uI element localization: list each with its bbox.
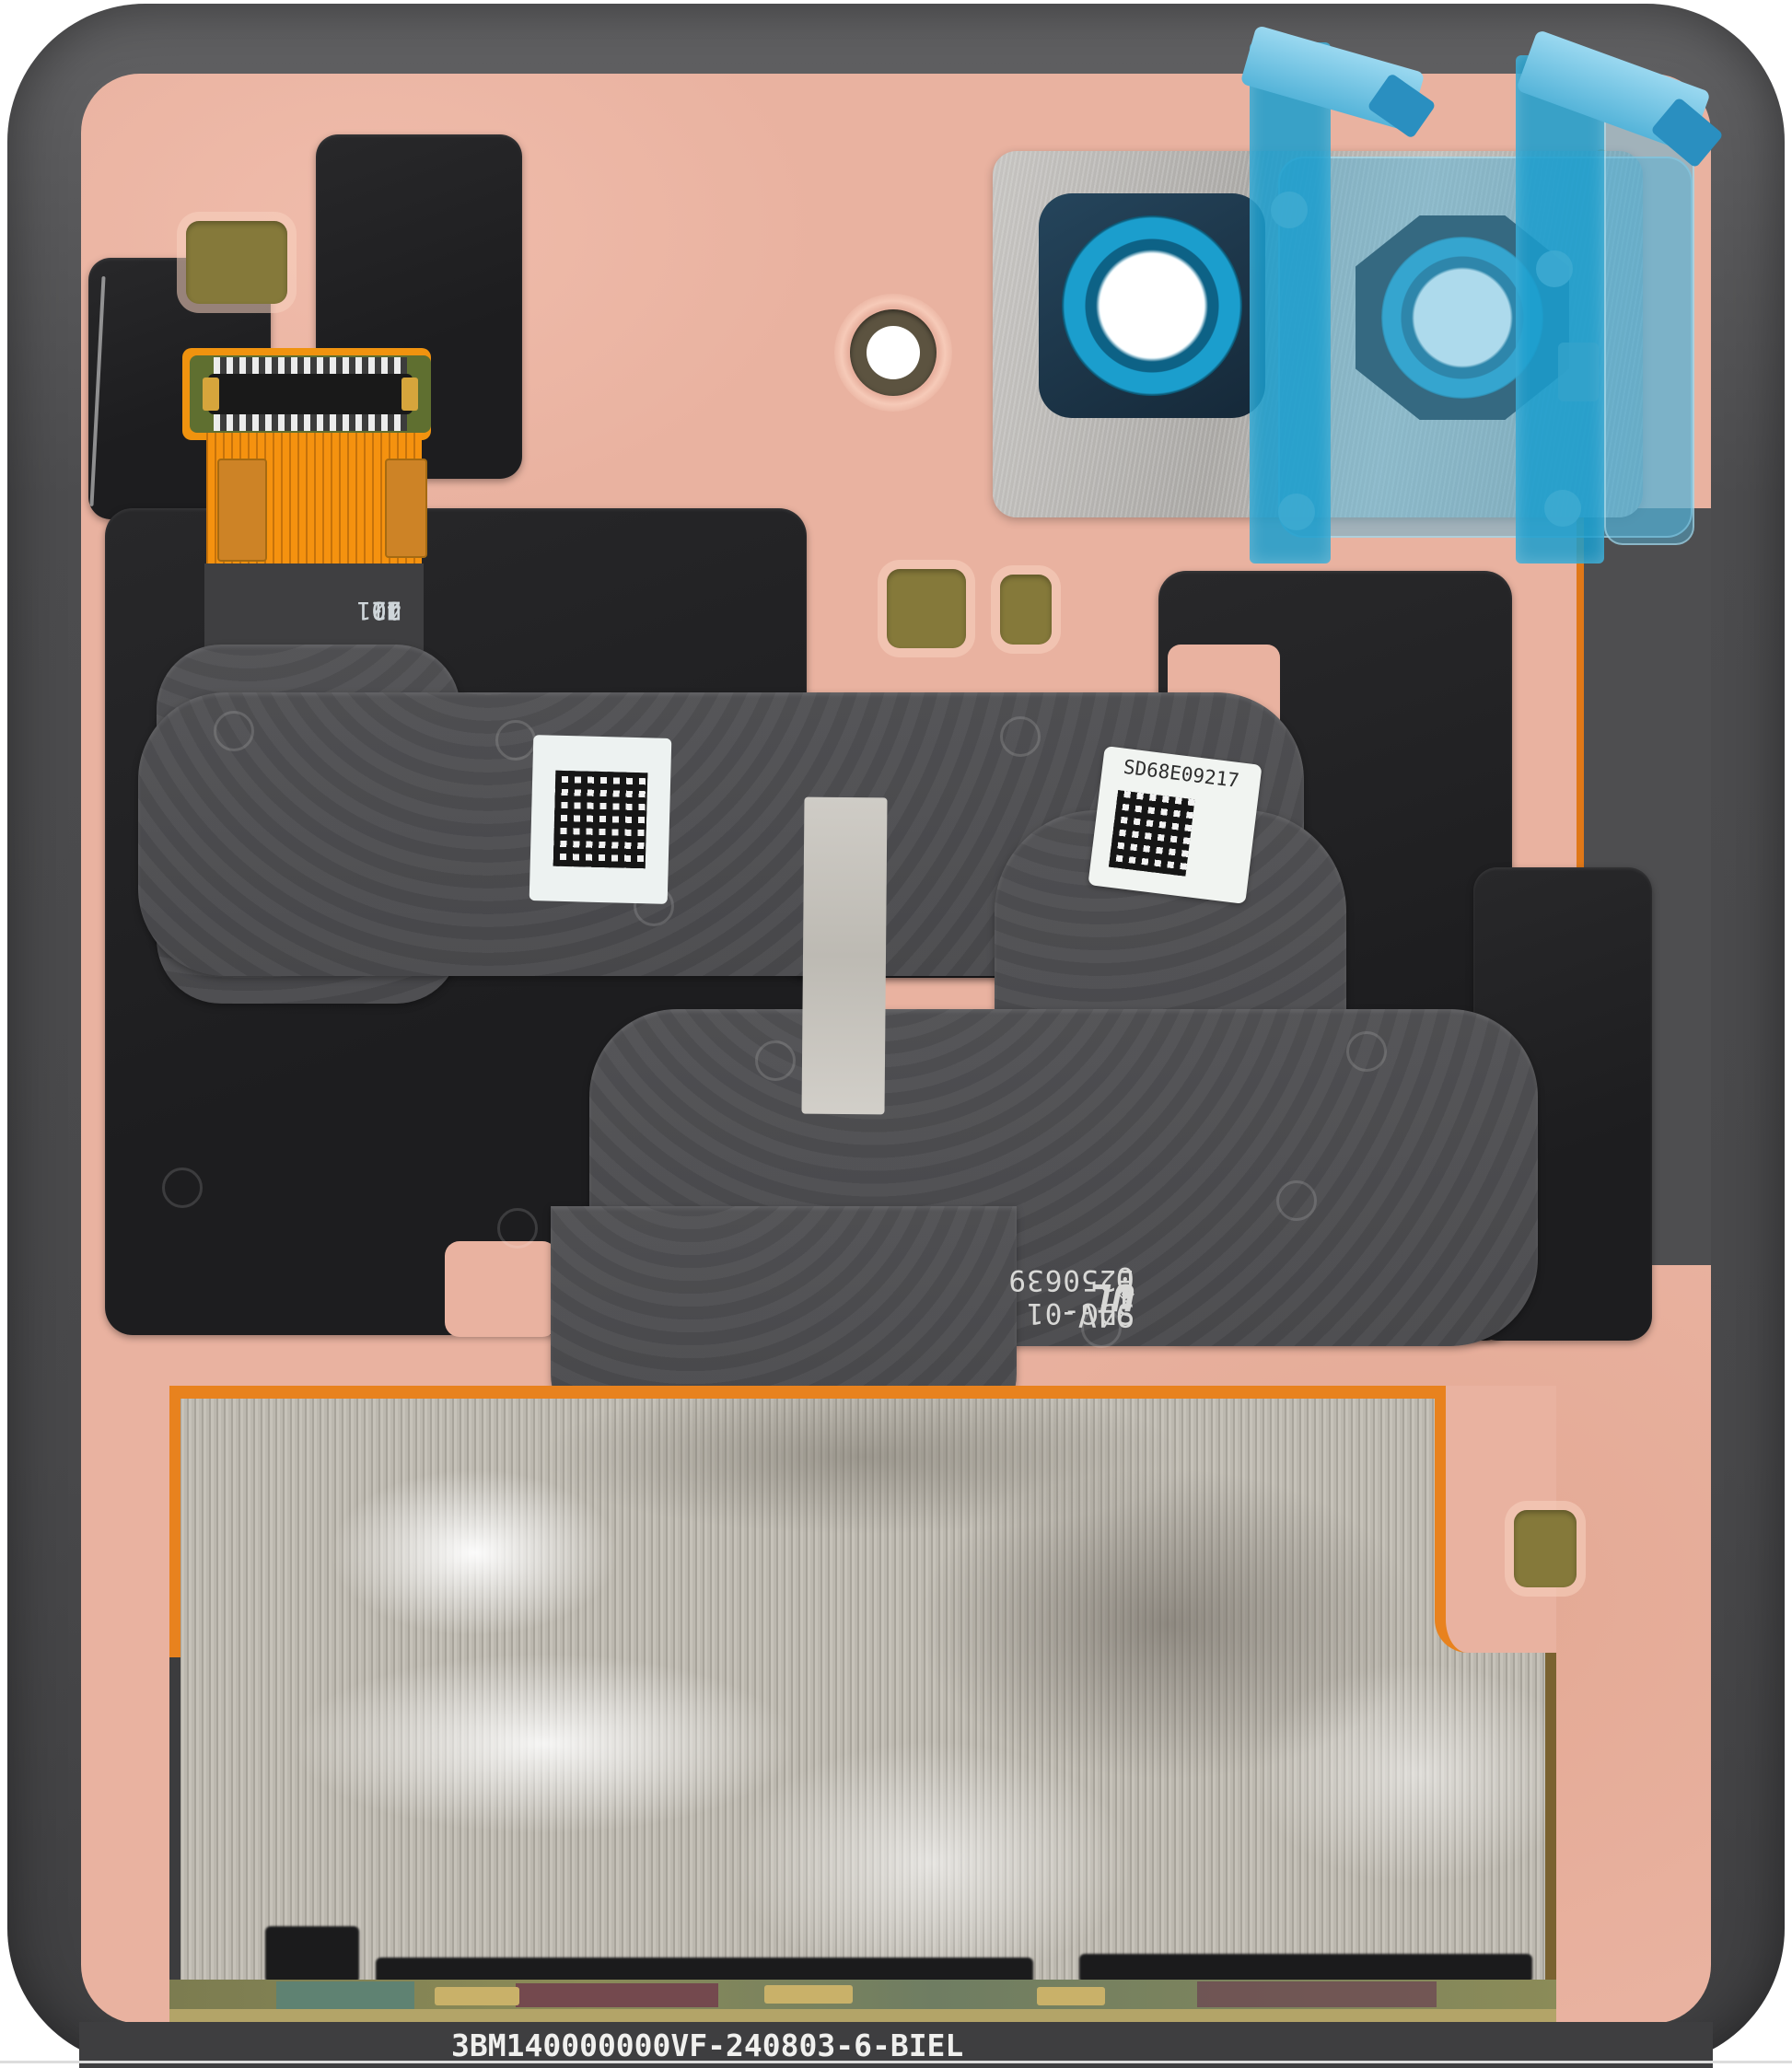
foil-border-dark [1545,1630,1556,1982]
flex-dimple [1346,1031,1387,1072]
rear-housing-photo: 40 U21 21 1 20 SD68E09217 SDG-01 E250639 [0,0,1792,2068]
board-connector [208,374,413,414]
copper-pad [217,459,267,562]
graphite-notch-cutout [445,1241,557,1337]
batch-code-text: 3BM140000000VF-240803-6-BIEL [451,2027,963,2063]
antenna-contact-pad [186,221,287,304]
adhesive-foam-block [265,1926,359,1983]
antenna-contact-pad [1514,1510,1577,1587]
cert-suffix: 1 [1116,1278,1135,1315]
pcb-edge-line [169,2009,1556,2022]
emi-foil-shield [169,1386,1556,1982]
silver-sticker [802,797,888,1115]
flex-dimple [755,1040,796,1081]
foil-border [169,1386,1556,1399]
connector-pins-row [214,414,407,431]
copper-pad [385,459,427,558]
pcb-patch [276,1981,414,2009]
flex-dimple [495,720,536,761]
mic-hole [867,326,920,379]
datamatrix-code [553,771,648,869]
gold-contact-chip [764,1985,853,2004]
pull-tape-right [1516,55,1604,563]
antenna-contact-pad [1000,575,1052,645]
flex-certification-print: SDG-01 E250639 UL 94V-0 ◈ 1 [785,1162,1135,1300]
flex-dimple [214,711,254,751]
pin-number: 20 [371,596,401,624]
flex-dimple [1000,716,1041,757]
gold-contact-chip [435,1987,519,2005]
datamatrix-label [529,735,672,904]
connector-gold-end [203,378,219,411]
pcb-patch [516,1983,718,2007]
connector-pins-row [214,357,407,374]
connector-gold-end [401,378,418,411]
flex-dimple [1276,1180,1317,1221]
gold-contact-chip [1037,1987,1105,2005]
antenna-contact-pad [887,569,966,648]
camera-lens-left [1062,215,1242,396]
qr-code [1109,790,1195,877]
foil-border [169,1386,180,1662]
flex-dimple [162,1168,203,1208]
serial-label: SD68E09217 [1088,746,1262,904]
foil-border-dark [169,1657,180,1982]
pull-tape-left [1250,42,1331,563]
photo-bottom-edge [0,2061,1792,2063]
pcb-patch [1197,1981,1437,2007]
flex-dimple [497,1208,538,1249]
